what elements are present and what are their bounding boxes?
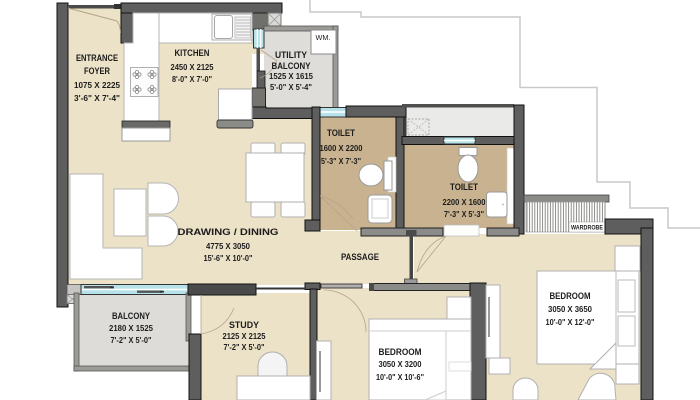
svg-text:4775 X 3050: 4775 X 3050 bbox=[206, 241, 250, 251]
svg-text:3050 X 3650: 3050 X 3650 bbox=[548, 304, 592, 314]
svg-text:BEDROOM: BEDROOM bbox=[550, 291, 591, 301]
svg-text:15'-6" X 10'-0": 15'-6" X 10'-0" bbox=[204, 253, 253, 263]
svg-text:TOILET: TOILET bbox=[450, 182, 478, 192]
svg-text:UTILITY: UTILITY bbox=[275, 50, 307, 60]
svg-text:BEDROOM: BEDROOM bbox=[379, 347, 422, 357]
svg-text:1075 X 2225: 1075 X 2225 bbox=[74, 80, 120, 90]
svg-text:2125 X 2125: 2125 X 2125 bbox=[223, 331, 266, 341]
svg-text:7'-3" X 5'-3": 7'-3" X 5'-3" bbox=[444, 209, 484, 219]
svg-text:PASSAGE: PASSAGE bbox=[341, 252, 379, 262]
svg-text:WARDROBE: WARDROBE bbox=[571, 226, 603, 232]
svg-text:DRAWING / DINING: DRAWING / DINING bbox=[178, 227, 279, 237]
svg-text:ENTRANCE: ENTRANCE bbox=[76, 53, 118, 63]
svg-text:STUDY: STUDY bbox=[229, 320, 259, 330]
svg-text:7'-2" X 5'-0": 7'-2" X 5'-0" bbox=[224, 342, 265, 352]
svg-text:KITCHEN: KITCHEN bbox=[175, 48, 210, 58]
svg-text:7'-2" X 5'-0": 7'-2" X 5'-0" bbox=[111, 335, 152, 345]
svg-text:3'-6" X 7'-4": 3'-6" X 7'-4" bbox=[74, 93, 120, 103]
svg-text:10'-0" X 12'-0": 10'-0" X 12'-0" bbox=[546, 317, 595, 327]
svg-text:1600 X 2200: 1600 X 2200 bbox=[320, 143, 363, 153]
svg-text:5'-0" X 5'-4": 5'-0" X 5'-4" bbox=[270, 82, 312, 92]
svg-text:2450 X 2125: 2450 X 2125 bbox=[171, 62, 214, 72]
svg-text:2200 X 1600: 2200 X 1600 bbox=[443, 197, 486, 207]
svg-text:1525 X 1615: 1525 X 1615 bbox=[269, 71, 313, 81]
svg-text:5'-3" X 7'-3": 5'-3" X 7'-3" bbox=[321, 156, 361, 166]
svg-text:WM.: WM. bbox=[316, 35, 331, 42]
svg-text:FOYER: FOYER bbox=[84, 66, 110, 76]
svg-text:BALCONY: BALCONY bbox=[272, 61, 311, 71]
svg-text:10'-0" X 10'-6": 10'-0" X 10'-6" bbox=[376, 372, 424, 382]
svg-text:BALCONY: BALCONY bbox=[112, 311, 150, 321]
svg-text:TOILET: TOILET bbox=[327, 128, 355, 138]
svg-text:8'-0" X 7'-0": 8'-0" X 7'-0" bbox=[172, 74, 212, 84]
svg-text:3050 X 3200: 3050 X 3200 bbox=[379, 359, 422, 369]
svg-text:2180 X 1525: 2180 X 1525 bbox=[109, 323, 153, 333]
